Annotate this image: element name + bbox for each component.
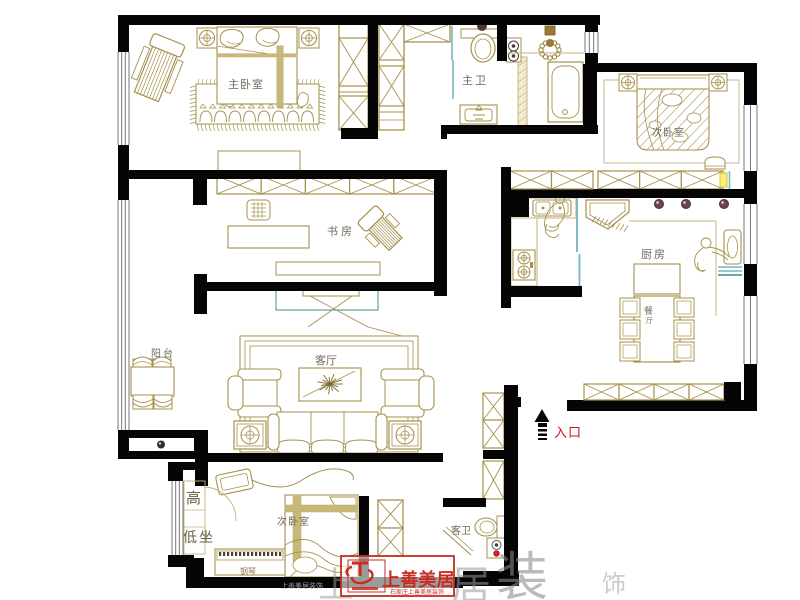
svg-text:上善美居: 上善美居 — [382, 569, 455, 590]
svg-text:次卧室: 次卧室 — [652, 126, 685, 139]
svg-text:低坐: 低坐 — [183, 529, 215, 545]
svg-text:钢琴: 钢琴 — [240, 566, 256, 576]
svg-text:厅: 厅 — [646, 317, 653, 325]
svg-text:书房: 书房 — [327, 225, 355, 238]
svg-text:主卧室: 主卧室 — [228, 77, 264, 91]
svg-text:厨房: 厨房 — [641, 248, 667, 261]
svg-text:高: 高 — [186, 490, 201, 507]
svg-text:装: 装 — [496, 549, 548, 600]
svg-text:上善美居装饰: 上善美居装饰 — [281, 581, 323, 590]
svg-text:石家庄上善美居装饰: 石家庄上善美居装饰 — [390, 588, 444, 596]
svg-text:饰: 饰 — [602, 571, 626, 598]
svg-text:客厅: 客厅 — [315, 353, 337, 367]
svg-text:餐: 餐 — [644, 305, 653, 316]
svg-text:居: 居 — [451, 564, 491, 600]
svg-text:主卫: 主卫 — [462, 74, 488, 87]
svg-text:次卧室: 次卧室 — [277, 515, 310, 528]
svg-text:阳台: 阳台 — [151, 347, 175, 360]
svg-text:入口: 入口 — [554, 425, 582, 440]
svg-text:客卫: 客卫 — [451, 524, 471, 537]
